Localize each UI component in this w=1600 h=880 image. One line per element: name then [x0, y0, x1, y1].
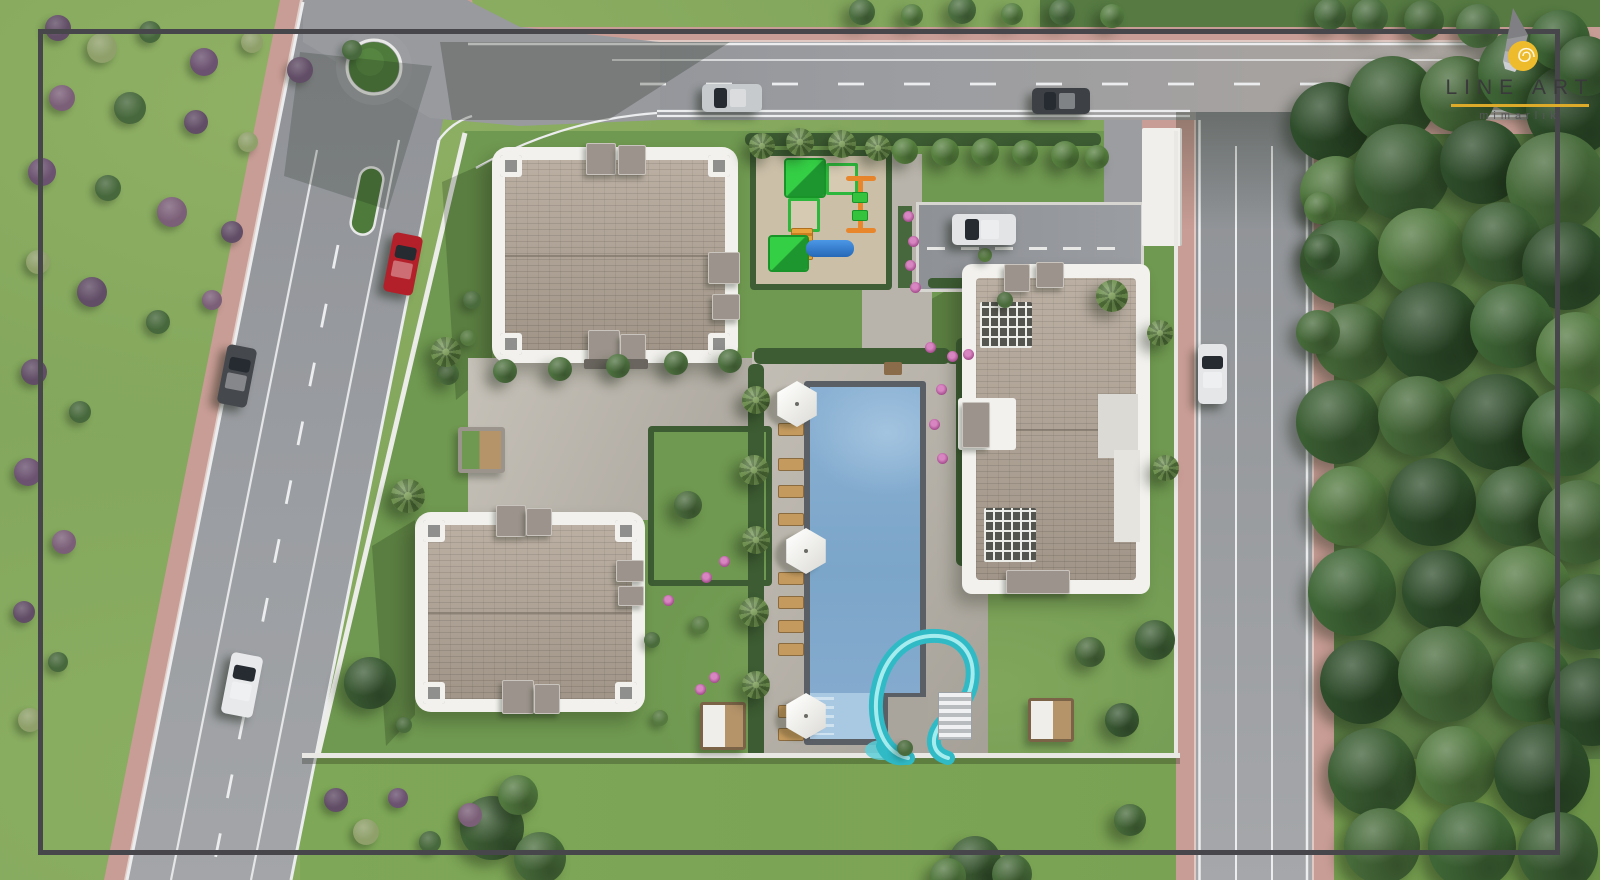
tree [849, 0, 875, 25]
tree [901, 4, 923, 26]
tree [948, 0, 976, 24]
bush [13, 601, 35, 623]
lineart-spiral-icon [1492, 8, 1538, 74]
tree [1314, 0, 1346, 30]
tree [992, 854, 1032, 880]
tree [1100, 4, 1124, 28]
brand-underline [1451, 104, 1589, 107]
brand-subtitle: mimarlık [1432, 110, 1600, 122]
decorative-frame [38, 29, 1560, 855]
tree [1049, 0, 1075, 25]
aerial-site-render: LINE ART mimarlık [0, 0, 1600, 880]
brand-title: LINE ART [1432, 76, 1600, 100]
brand-logo: LINE ART mimarlık [1432, 8, 1600, 132]
tree [1001, 3, 1023, 25]
